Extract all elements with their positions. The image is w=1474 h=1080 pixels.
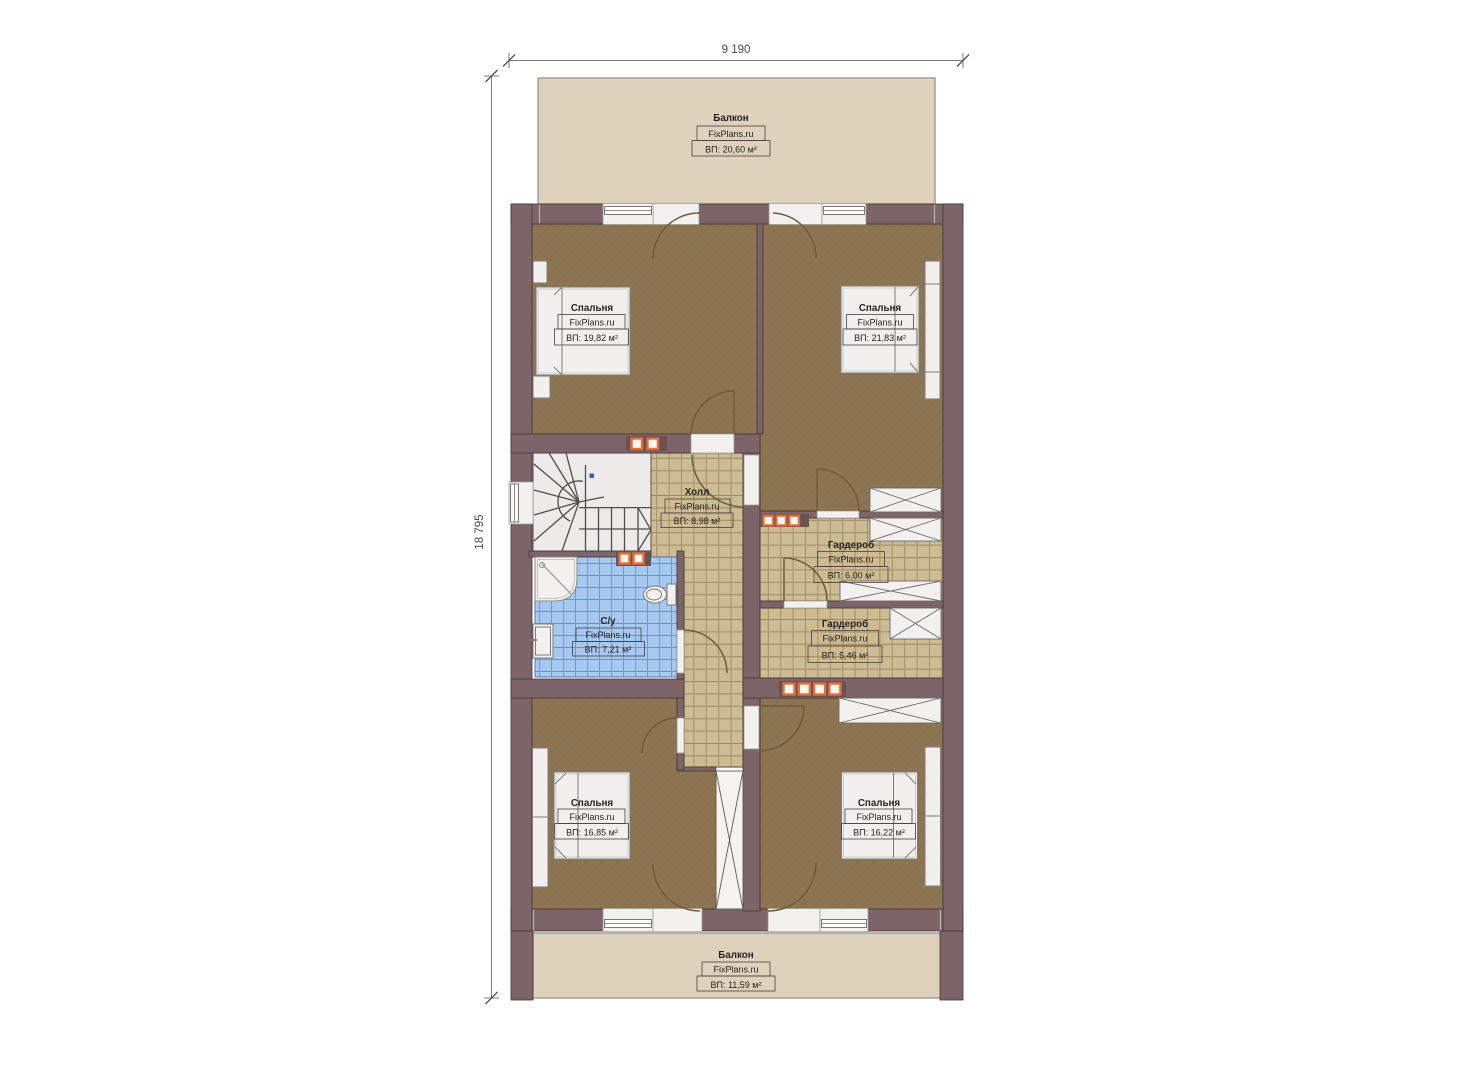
svg-text:ВП: 8,98 м²: ВП: 8,98 м² (674, 516, 721, 526)
svg-text:Гардероб: Гардероб (822, 619, 868, 630)
svg-text:ВП: 7,21 м²: ВП: 7,21 м² (585, 645, 632, 655)
svg-text:ВП: 6,00 м²: ВП: 6,00 м² (828, 571, 875, 581)
svg-text:Холл: Холл (685, 487, 710, 498)
svg-text:Балкон: Балкон (718, 950, 753, 961)
svg-text:ВП: 5,46 м²: ВП: 5,46 м² (822, 651, 869, 661)
svg-text:ВП: 16,22 м²: ВП: 16,22 м² (853, 828, 905, 838)
svg-text:FixPlans.ru: FixPlans.ru (674, 502, 719, 512)
svg-text:FixPlans.ru: FixPlans.ru (708, 129, 753, 139)
svg-text:Спальня: Спальня (571, 303, 614, 314)
svg-text:ВП: 20,60 м²: ВП: 20,60 м² (705, 145, 757, 155)
svg-text:FixPlans.ru: FixPlans.ru (569, 318, 614, 328)
svg-text:С/у: С/у (600, 616, 616, 627)
svg-text:ВП: 21,83 м²: ВП: 21,83 м² (854, 333, 906, 343)
svg-text:FixPlans.ru: FixPlans.ru (856, 812, 901, 822)
svg-text:Балкон: Балкон (713, 113, 748, 124)
svg-text:9 190: 9 190 (722, 44, 751, 56)
svg-text:FixPlans.ru: FixPlans.ru (713, 965, 758, 975)
svg-text:ВП: 16,85 м²: ВП: 16,85 м² (566, 828, 618, 838)
svg-text:Спальня: Спальня (858, 798, 901, 809)
svg-text:FixPlans.ru: FixPlans.ru (569, 812, 614, 822)
svg-text:FixPlans.ru: FixPlans.ru (828, 555, 873, 565)
svg-text:Гардероб: Гардероб (828, 540, 874, 551)
svg-text:ВП: 19,82 м²: ВП: 19,82 м² (566, 333, 618, 343)
svg-text:FixPlans.ru: FixPlans.ru (585, 630, 630, 640)
svg-text:ВП: 11,59 м²: ВП: 11,59 м² (710, 980, 761, 990)
svg-text:FixPlans.ru: FixPlans.ru (857, 318, 902, 328)
svg-text:FixPlans.ru: FixPlans.ru (822, 634, 867, 644)
svg-text:18 795: 18 795 (474, 514, 486, 549)
svg-text:Спальня: Спальня (571, 798, 614, 809)
svg-text:Спальня: Спальня (859, 303, 902, 314)
